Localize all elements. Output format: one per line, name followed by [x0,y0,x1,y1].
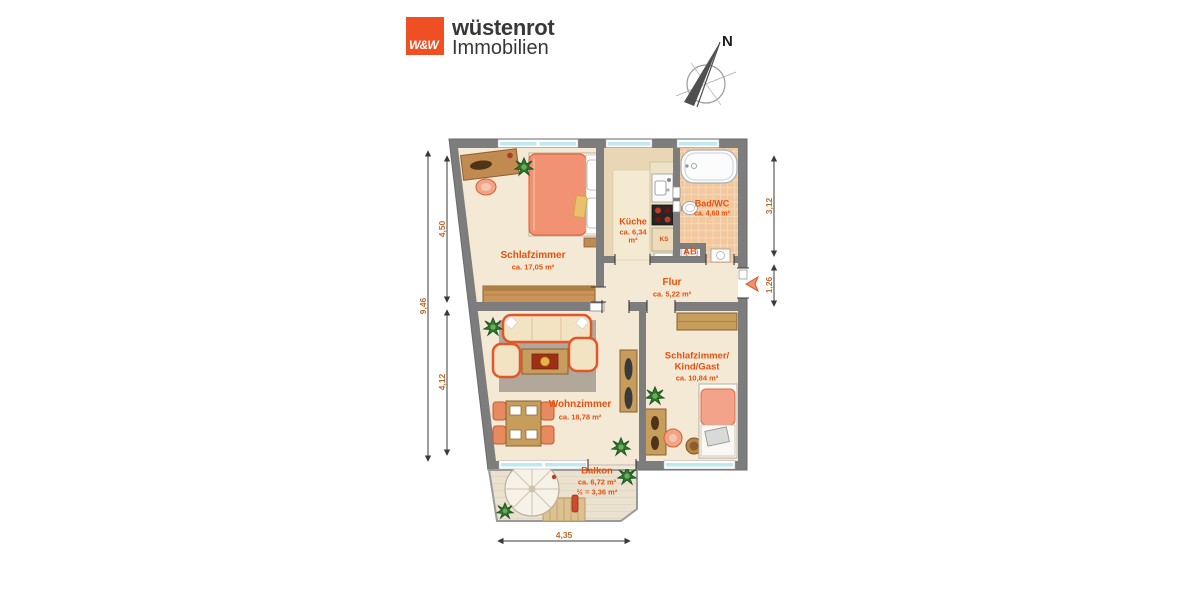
room-area-wohnzimmer: ca. 18,78 m² [559,413,602,421]
dim-bottom: 4,35 [556,531,573,540]
entrance-arrow-icon [746,277,758,291]
room-area-flur: ca. 5,22 m² [653,290,691,298]
dim-left-lower: 4,12 [438,374,447,391]
coffee-table [522,349,568,374]
wardrobe [677,313,737,330]
room-area-bad-wc: ca. 4,60 m² [694,210,730,217]
stove [652,205,673,225]
room-area-kueche-2: m² [628,236,637,244]
bedroom-chair [476,179,496,195]
dim-left-upper: 4,50 [438,221,447,238]
washing-machine [711,249,730,262]
brand-division: Immobilien [452,37,549,60]
kitchen-sink [652,174,673,202]
compass-north-label: N [722,33,733,50]
brand-logo: W&W [406,17,444,55]
storage-label: AB [683,247,697,257]
parasol-icon [505,462,559,516]
kids-chair [664,429,682,447]
bedroom-sideboard [483,286,595,303]
room-area-kind-gast: ca. 10,84 m² [676,374,719,382]
kids-desk [644,409,666,455]
brand-monogram: W&W [409,38,438,52]
room-label-balkon: Balkon [581,466,613,476]
room-label-flur: Flur [663,278,682,288]
room-area-balkon-half: ½ = 3,36 m² [577,488,618,496]
tv-sideboard [620,350,637,412]
compass-icon [676,42,736,107]
kitchen-floor-inner [613,170,651,260]
floor-plan-svg [0,0,1200,600]
armchair-left [493,344,520,377]
single-bed [699,384,737,458]
fridge-label: KS [659,236,668,243]
room-label-wohnzimmer: Wohnzimmer [549,400,612,410]
room-area-balkon: ca. 6,72 m² [578,478,616,486]
dim-left-total: 9,46 [419,298,428,315]
dim-right-lower: 1,26 [765,277,774,294]
room-label-bad-wc: Bad/WC [695,200,730,209]
room-label-kind-gast-1: Schlafzimmer/ [665,351,729,361]
room-label-kueche: Küche [619,218,647,227]
dim-right-upper: 3,12 [765,198,774,215]
room-label-schlafzimmer: Schlafzimmer [500,251,565,261]
double-bed [529,153,603,247]
bathtub [681,150,737,183]
room-area-kueche-1: ca. 6,34 [619,228,646,236]
armchair-right [569,338,597,371]
room-label-kind-gast-2: Kind/Gast [675,362,720,372]
room-area-schlafzimmer: ca. 17,05 m² [512,263,555,271]
balcony-chair [572,495,578,512]
page: W&W wüstenrot Immobilien N Schlafzimmer … [0,0,1200,600]
